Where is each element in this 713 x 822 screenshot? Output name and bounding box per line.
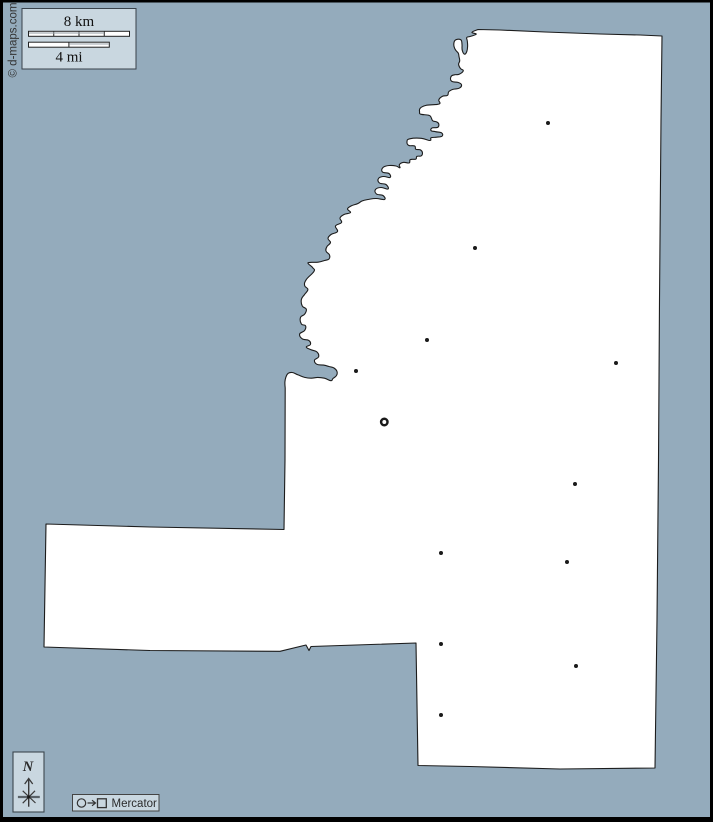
svg-text:8 km: 8 km [64, 14, 95, 30]
svg-text:N: N [22, 759, 34, 775]
svg-text:Mercator: Mercator [112, 798, 158, 810]
svg-text:© d-maps.com: © d-maps.com [7, 3, 19, 78]
svg-text:4 mi: 4 mi [55, 50, 82, 66]
